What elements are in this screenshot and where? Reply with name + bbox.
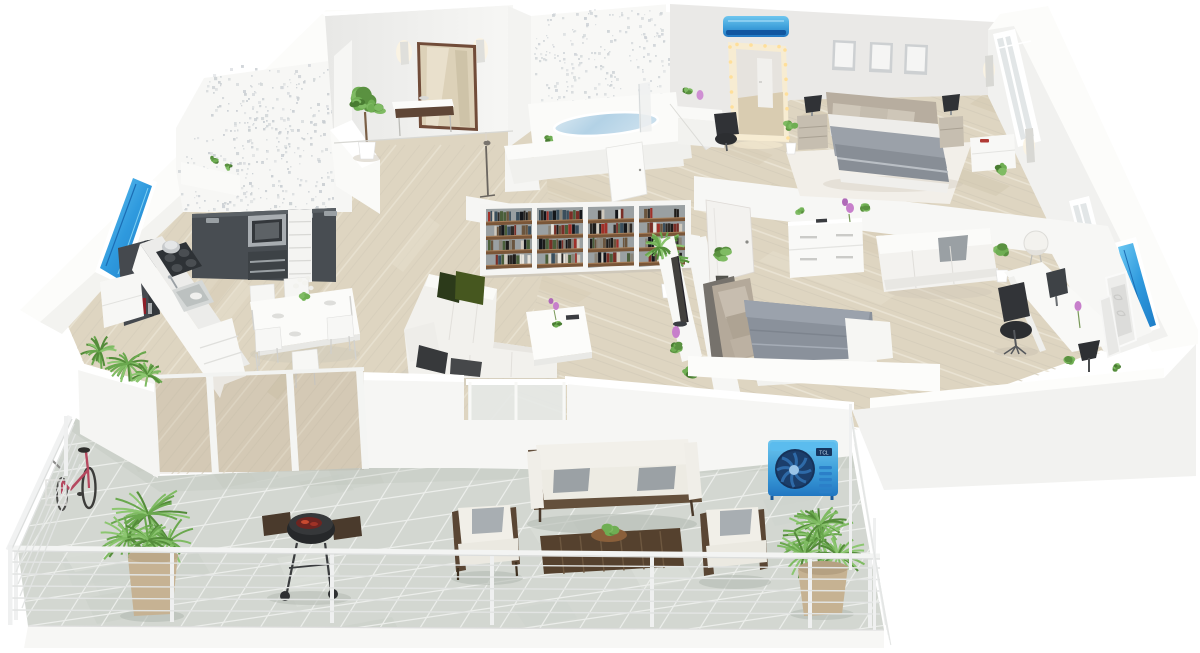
svg-text:TCL: TCL — [819, 451, 829, 457]
